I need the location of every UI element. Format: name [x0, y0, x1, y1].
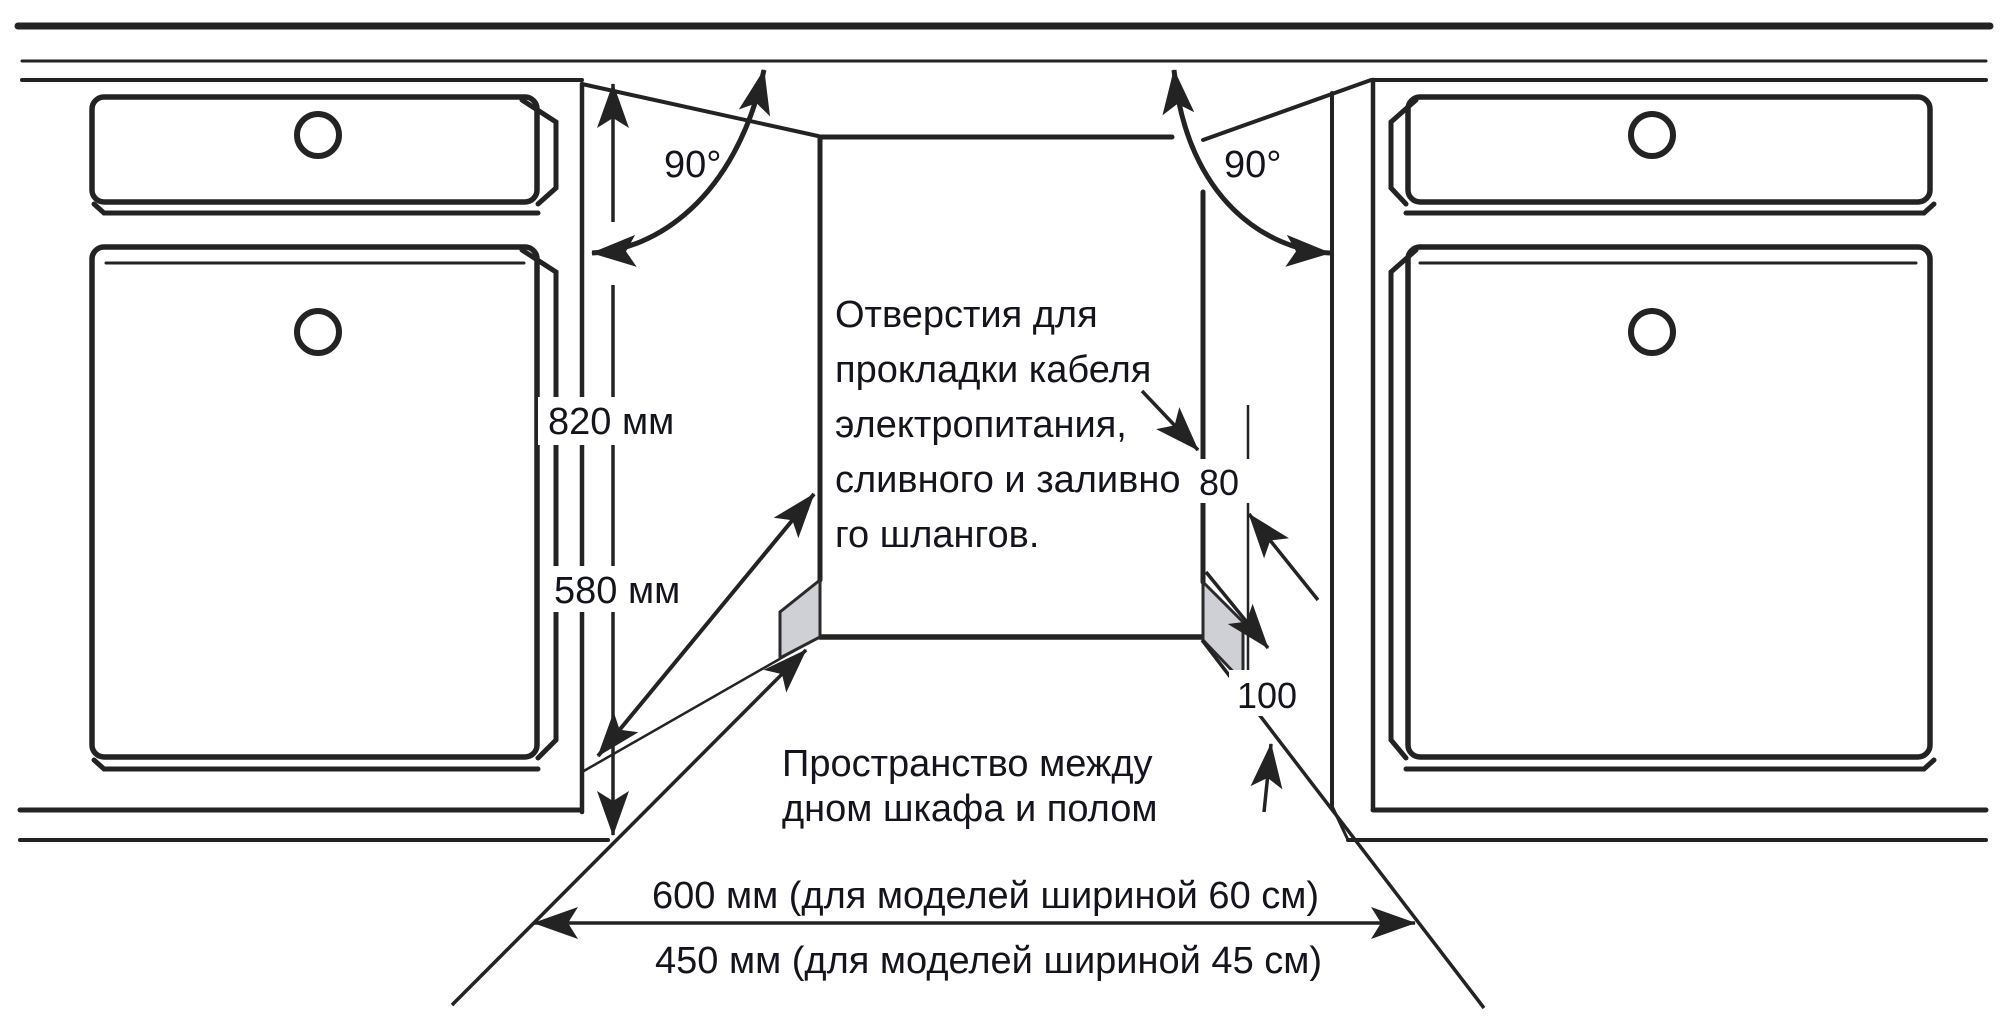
- angle-label-right: 90°: [1224, 144, 1281, 186]
- angle-label-left: 90°: [664, 144, 721, 186]
- holes-note-line: прокладки кабеля: [835, 349, 1151, 391]
- right-cabinet: [1332, 80, 1986, 840]
- left-door-knob-icon: [297, 311, 339, 353]
- holes-note: Отверстия для прокладки кабеля электропи…: [835, 294, 1180, 556]
- floor-note-line: Пространство между: [782, 743, 1153, 785]
- hose-hole-left: [780, 580, 820, 658]
- niche: [582, 137, 1243, 772]
- holes-note-leader: [1142, 391, 1198, 450]
- height-label: 820 мм: [548, 401, 674, 443]
- left-drawer-knob-icon: [297, 114, 339, 156]
- installation-diagram: 90° 90° 820 мм 580 мм Отверстия для прок…: [0, 0, 2000, 1026]
- right-drawer-knob-icon: [1631, 114, 1673, 156]
- width-60-label: 600 мм (для моделей шириной 60 см): [652, 875, 1319, 917]
- holes-note-line: электропитания,: [835, 404, 1127, 446]
- width-45-label: 450 мм (для моделей шириной 45 см): [655, 940, 1322, 982]
- holes-note-line: Отверстия для: [835, 294, 1098, 336]
- clearance-100-label: 100: [1237, 675, 1297, 716]
- floor-note: Пространство между дном шкафа и полом: [782, 743, 1158, 830]
- countertop-recede-left: [582, 84, 818, 136]
- countertop-recede-right: [1203, 80, 1371, 140]
- floor-note-line: дном шкафа и полом: [782, 788, 1158, 830]
- left-cabinet: [20, 84, 608, 840]
- depth-label: 580 мм: [554, 570, 680, 612]
- offset-80-label: 80: [1199, 462, 1239, 503]
- diagram-canvas: 90° 90° 820 мм 580 мм Отверстия для прок…: [0, 0, 2000, 1026]
- right-door-knob-icon: [1631, 311, 1673, 353]
- holes-note-line: го шлангов.: [835, 514, 1039, 556]
- holes-note-line: сливного и заливно: [835, 459, 1180, 501]
